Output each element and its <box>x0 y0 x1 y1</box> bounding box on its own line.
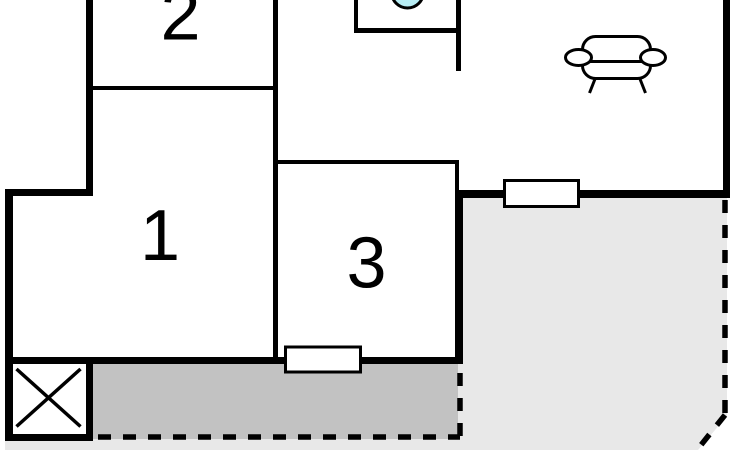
svg-text:1: 1 <box>140 196 180 276</box>
svg-text:3: 3 <box>346 224 386 304</box>
svg-text:2: 2 <box>160 0 200 56</box>
